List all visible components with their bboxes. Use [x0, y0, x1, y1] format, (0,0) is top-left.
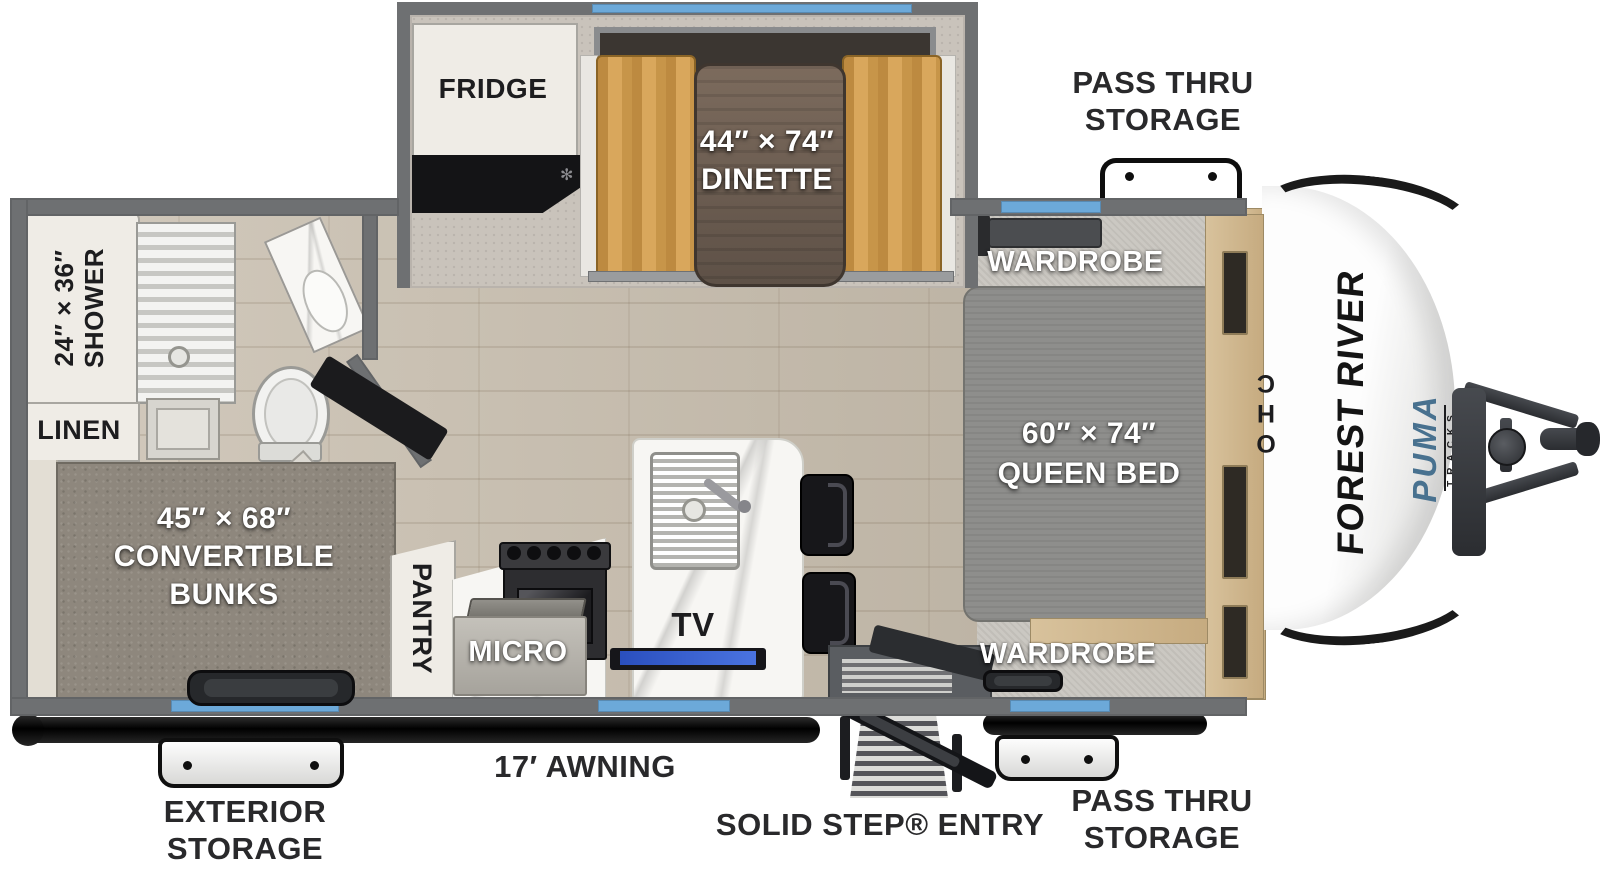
bunk-handle	[187, 670, 355, 706]
exterior-storage-door	[158, 738, 344, 788]
forest-river-logo-text: FOREST RIVER	[1329, 267, 1373, 557]
tv-label: TV	[648, 606, 738, 644]
stool-2	[802, 572, 856, 654]
toilet-tank	[258, 442, 322, 462]
pass-thru-tube	[983, 713, 1207, 735]
dinette-bench-rail-left	[588, 271, 708, 282]
stove-knob-3	[547, 546, 561, 560]
puma-logo: PUMA TRACKS	[1409, 348, 1457, 548]
shower-label-text: 24″ × 36″ SHOWER	[49, 248, 109, 368]
fridge-counter	[412, 155, 584, 213]
pass-thru-bottom-screw-left	[1021, 755, 1030, 764]
toilet-seat	[264, 378, 318, 450]
hitch-jack	[1488, 428, 1526, 466]
bedroom-floor-handle-slot	[994, 676, 1052, 686]
pantry-label-text: PANTRY	[406, 563, 437, 674]
tv-screen	[610, 648, 766, 670]
bedroom-floor-handle	[983, 670, 1063, 692]
dinette-name: DINETTE	[647, 161, 887, 199]
pass-thru-top-line2: STORAGE	[1043, 101, 1283, 138]
shower-door	[136, 222, 236, 404]
stove-knob-2	[527, 546, 541, 560]
pass-thru-top-label: PASS THRU STORAGE	[1043, 64, 1283, 138]
stove-knob-5	[587, 546, 601, 560]
bunks-size: 45″ × 68″	[64, 500, 384, 538]
queen-bed-name: QUEEN BED	[963, 454, 1215, 494]
awning-label-text: 17′ AWNING	[494, 749, 676, 784]
pass-thru-bottom-line1: PASS THRU	[1042, 782, 1282, 819]
ext-storage-screw-right	[310, 761, 319, 770]
dinette-window	[592, 4, 912, 13]
stool-2-back	[830, 581, 849, 645]
dinette-size: 44″ × 74″	[647, 123, 887, 161]
micro-label: MICRO	[453, 636, 583, 669]
queen-bed-label: 60″ × 74″ QUEEN BED	[963, 414, 1215, 494]
dinette-bench-rail-right	[834, 271, 954, 282]
bath-wall-stub	[362, 214, 378, 360]
linen-label: LINEN	[22, 402, 136, 458]
shower-drain-icon	[168, 346, 190, 368]
pass-thru-top-screw-left	[1125, 172, 1134, 181]
linen-drawer-face	[156, 408, 210, 450]
dinette-label: 44″ × 74″ DINETTE	[647, 123, 887, 199]
wardrobe-top-text: WARDROBE	[987, 246, 1163, 278]
wardrobe-bottom-text: WARDROBE	[980, 638, 1156, 670]
ext-storage-screw-left	[183, 761, 192, 770]
shower-size: 24″ × 36″	[49, 248, 79, 368]
stove-knob-1	[507, 546, 521, 560]
linen-label-text: LINEN	[37, 415, 121, 446]
shower-label: 24″ × 36″ SHOWER	[22, 210, 136, 406]
tv-screen-panel	[620, 651, 756, 665]
floorplan-canvas: FRIDGE ✻ 44″ × 74″ DINETTE 24″ × 36″ SHO…	[0, 0, 1600, 883]
bottom-window-bedroom	[1010, 700, 1110, 712]
pass-thru-bottom-line2: STORAGE	[1042, 819, 1282, 856]
exterior-storage-label: EXTERIOR STORAGE	[125, 793, 365, 867]
micro-label-text: MICRO	[468, 636, 567, 668]
bottom-window-kitchen	[598, 700, 730, 712]
bunk-edge	[28, 460, 58, 697]
wardrobe-top-label: WARDROBE	[958, 246, 1193, 279]
exterior-steps	[840, 716, 990, 800]
pass-thru-door-bottom	[995, 735, 1119, 781]
pantry-label: PANTRY	[390, 540, 452, 697]
pass-thru-top-screw-right	[1208, 172, 1217, 181]
counter-vent-icon: ✻	[560, 165, 573, 185]
ohc-label-text: OHC	[1252, 367, 1280, 457]
step-post-left	[840, 716, 850, 780]
stove-knob-4	[567, 546, 581, 560]
shower-name: SHOWER	[79, 248, 109, 368]
stool-1	[800, 474, 854, 556]
ohc-label: OHC	[1252, 366, 1298, 458]
bunks-line3: BUNKS	[64, 576, 384, 614]
pass-thru-top-line1: PASS THRU	[1043, 64, 1283, 101]
bunks-label: 45″ × 68″ CONVERTIBLE BUNKS	[64, 500, 384, 614]
tv-label-text: TV	[671, 606, 714, 643]
fridge-label: FRIDGE	[412, 23, 574, 155]
entry-label: SOLID STEP® ENTRY	[700, 806, 1060, 843]
exterior-storage-line1: EXTERIOR	[125, 793, 365, 830]
exterior-storage-line2: STORAGE	[125, 830, 365, 867]
bedroom-top-window	[1001, 201, 1101, 213]
forest-river-logo: FOREST RIVER	[1329, 242, 1373, 582]
hitch-mount-plate	[1452, 388, 1486, 556]
wardrobe-slot-1	[1222, 251, 1248, 335]
wardrobe-bottom-label: WARDROBE	[948, 638, 1188, 671]
fridge-label-text: FRIDGE	[439, 73, 548, 105]
bedroom-shelf	[988, 218, 1102, 248]
hitch-coupler	[1576, 422, 1600, 456]
sink-drain-icon	[682, 498, 706, 522]
awning-tube	[20, 717, 820, 743]
stool-1-back	[828, 483, 847, 547]
puma-logo-text: PUMA	[1409, 348, 1441, 548]
awning-label: 17′ AWNING	[455, 748, 715, 785]
bunks-line2: CONVERTIBLE	[64, 538, 384, 576]
awning-tube-endcap	[12, 714, 44, 746]
pass-thru-bottom-screw-right	[1084, 755, 1093, 764]
faucet-base	[738, 500, 751, 513]
pass-thru-bottom-label: PASS THRU STORAGE	[1042, 782, 1282, 856]
wardrobe-slot-2	[1222, 465, 1248, 579]
dinette-slideout: FRIDGE ✻ 44″ × 74″ DINETTE	[397, 2, 978, 288]
entry-label-text: SOLID STEP® ENTRY	[716, 807, 1044, 842]
wardrobe-slot-3	[1222, 605, 1248, 679]
queen-bed-size: 60″ × 74″	[963, 414, 1215, 454]
linen-drawer	[146, 398, 220, 460]
bunk-handle-slot	[204, 679, 338, 697]
